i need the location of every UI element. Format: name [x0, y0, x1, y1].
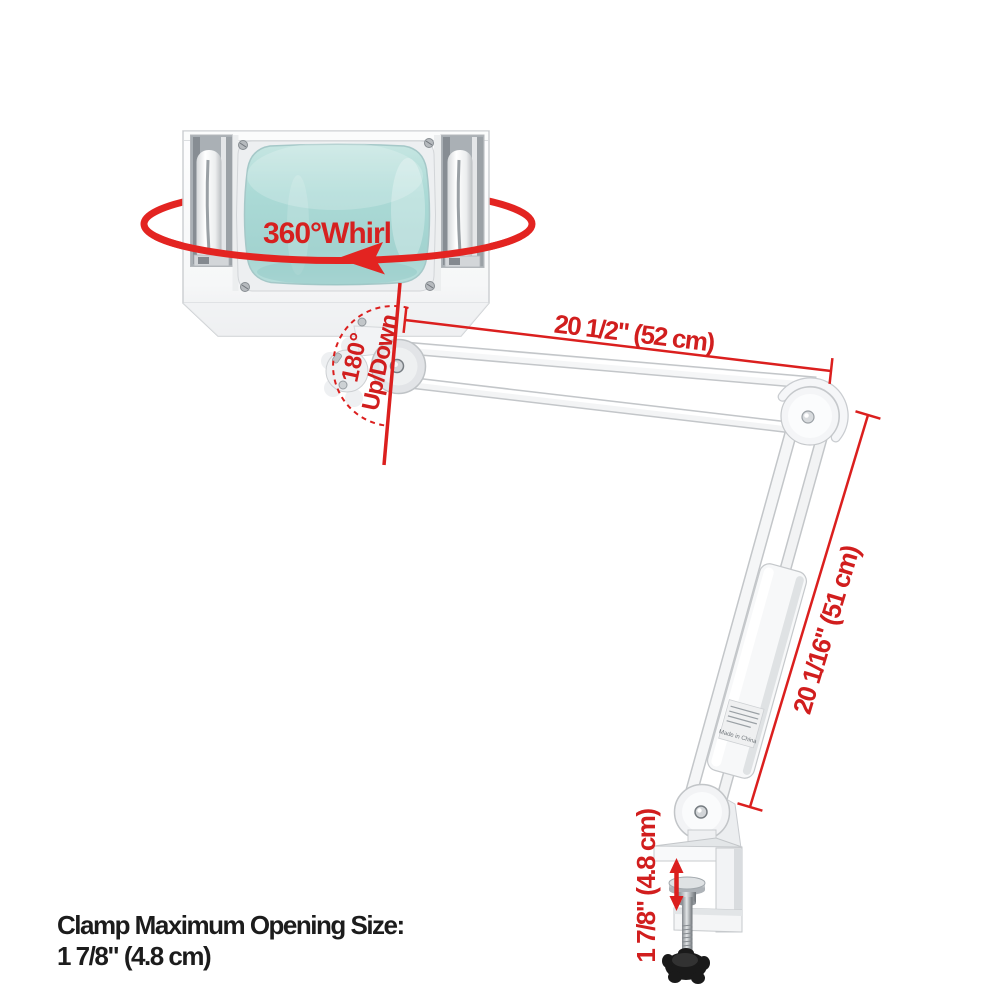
svg-text:1 7/8" (4.8 cm): 1 7/8" (4.8 cm) — [631, 809, 661, 963]
svg-text:20 1/2" (52 cm): 20 1/2" (52 cm) — [553, 309, 717, 358]
svg-text:360°Whirl: 360°Whirl — [263, 217, 391, 250]
svg-text:20 1/16" (51 cm): 20 1/16" (51 cm) — [787, 542, 866, 717]
